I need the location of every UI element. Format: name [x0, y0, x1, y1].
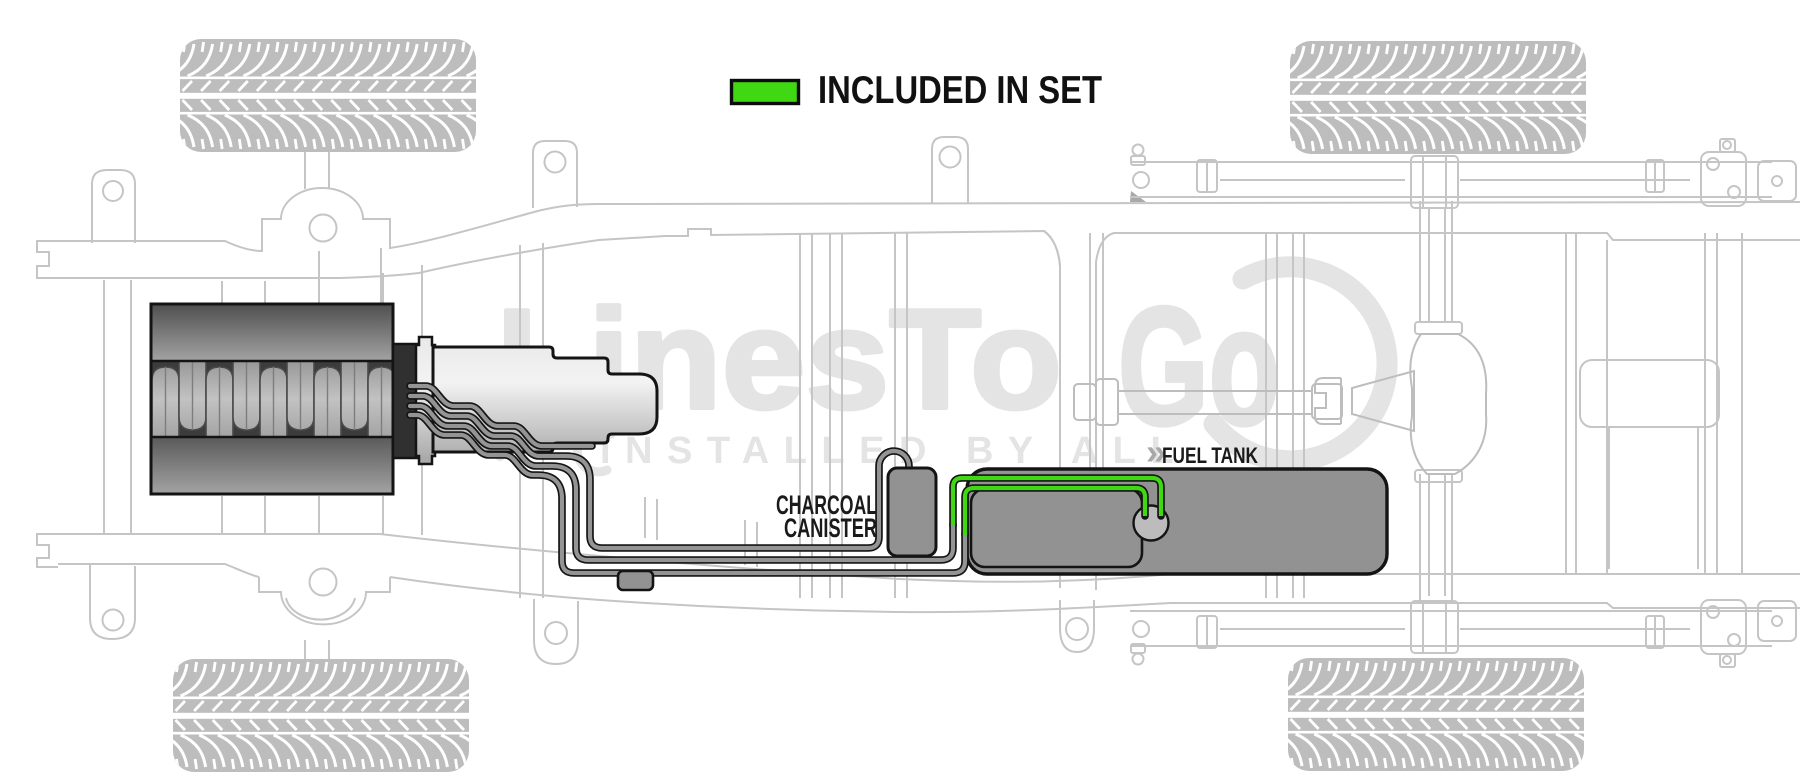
svg-text:INCLUDED IN SET: INCLUDED IN SET	[818, 69, 1102, 112]
svg-text:CANISTER: CANISTER	[784, 513, 877, 543]
svg-text:FUEL TANK: FUEL TANK	[1162, 443, 1259, 468]
